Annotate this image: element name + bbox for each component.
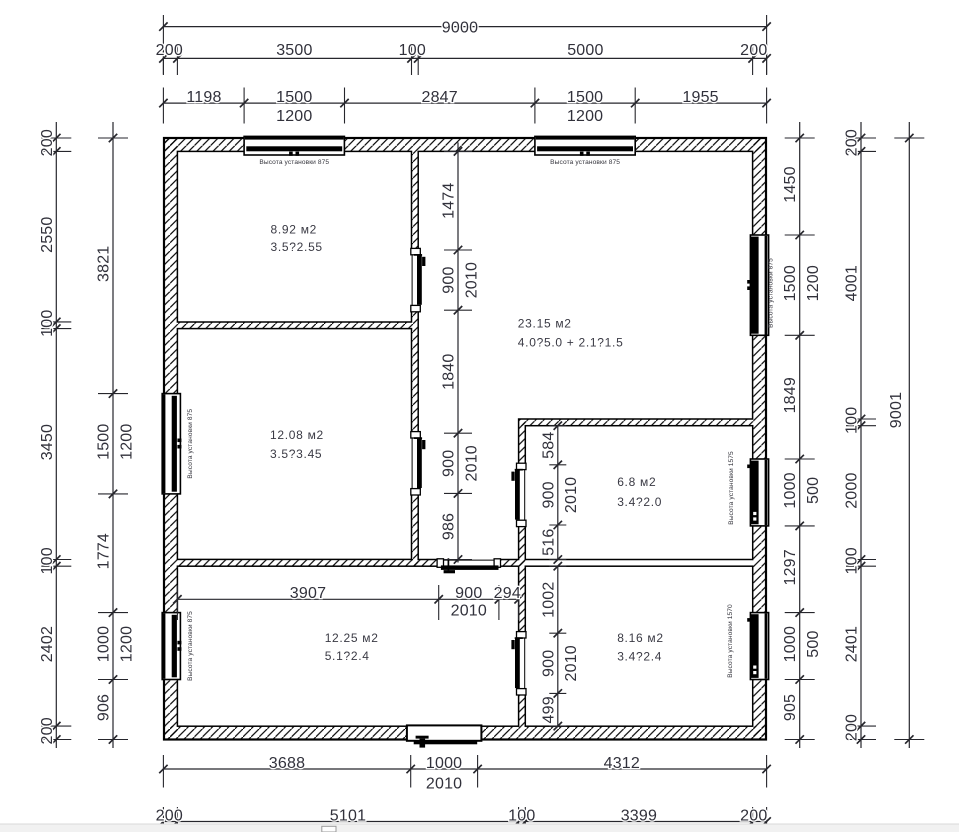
svg-text:100: 100: [399, 42, 426, 59]
svg-text:3399: 3399: [621, 807, 657, 824]
svg-text:500: 500: [805, 630, 822, 657]
svg-text:3821: 3821: [96, 246, 113, 282]
svg-text:1500: 1500: [96, 423, 113, 459]
svg-text:906: 906: [96, 694, 113, 721]
svg-text:200: 200: [39, 717, 56, 744]
svg-text:Высота установки 875: Высота установки 875: [187, 409, 194, 479]
svg-text:100: 100: [39, 547, 56, 574]
svg-text:Высота установки 875: Высота установки 875: [259, 159, 329, 166]
svg-text:100: 100: [844, 547, 861, 574]
svg-text:100: 100: [39, 310, 56, 337]
svg-text:905: 905: [782, 694, 799, 721]
svg-text:500: 500: [805, 477, 822, 504]
svg-text:12.08 м2: 12.08 м2: [270, 428, 324, 442]
svg-text:2010: 2010: [451, 603, 487, 620]
svg-text:900: 900: [441, 266, 458, 293]
svg-text:3.5?2.55: 3.5?2.55: [271, 240, 323, 254]
svg-text:900: 900: [455, 585, 482, 602]
svg-text:200: 200: [39, 129, 56, 156]
svg-text:3688: 3688: [269, 755, 305, 772]
svg-text:1840: 1840: [441, 353, 458, 389]
svg-text:2000: 2000: [844, 472, 861, 508]
svg-text:200: 200: [156, 42, 183, 59]
svg-text:200: 200: [740, 807, 767, 824]
svg-text:1200: 1200: [118, 423, 135, 459]
svg-text:1200: 1200: [567, 108, 603, 125]
svg-text:986: 986: [441, 513, 458, 540]
svg-text:1000: 1000: [782, 626, 799, 662]
svg-text:584: 584: [540, 432, 557, 459]
svg-text:4001: 4001: [844, 265, 861, 301]
svg-text:8.92 м2: 8.92 м2: [271, 223, 318, 237]
svg-text:1000: 1000: [782, 472, 799, 508]
svg-text:4.0?5.0 + 2.1?1.5: 4.0?5.0 + 2.1?1.5: [518, 335, 624, 349]
svg-text:2847: 2847: [421, 89, 457, 106]
svg-text:5101: 5101: [330, 807, 366, 824]
svg-text:2402: 2402: [39, 626, 56, 662]
svg-text:1500: 1500: [276, 89, 312, 106]
svg-text:1474: 1474: [441, 182, 458, 218]
svg-text:200: 200: [844, 714, 861, 741]
svg-text:6.8 м2: 6.8 м2: [617, 475, 656, 489]
svg-text:200: 200: [156, 807, 183, 824]
svg-text:3.4?2.0: 3.4?2.0: [617, 495, 662, 509]
svg-text:2010: 2010: [563, 477, 580, 513]
svg-text:5.1?2.4: 5.1?2.4: [325, 649, 370, 663]
svg-text:2401: 2401: [844, 626, 861, 662]
svg-text:499: 499: [540, 696, 557, 723]
svg-text:Высота установки 1575: Высота установки 1575: [728, 451, 735, 525]
svg-text:Высота установки 875: Высота установки 875: [550, 159, 620, 166]
svg-text:100: 100: [508, 807, 535, 824]
svg-text:3450: 3450: [39, 424, 56, 460]
svg-text:2010: 2010: [426, 776, 462, 793]
svg-text:200: 200: [740, 42, 767, 59]
svg-text:516: 516: [540, 529, 557, 556]
svg-text:2550: 2550: [39, 216, 56, 252]
svg-text:1198: 1198: [186, 89, 221, 106]
svg-text:900: 900: [540, 650, 557, 677]
svg-text:1849: 1849: [782, 377, 799, 413]
svg-text:Высота установки 1570: Высота установки 1570: [727, 604, 734, 678]
svg-text:2010: 2010: [463, 445, 480, 481]
svg-text:1200: 1200: [118, 626, 135, 662]
svg-text:100: 100: [844, 407, 861, 434]
svg-text:900: 900: [441, 450, 458, 477]
svg-text:3.5?3.45: 3.5?3.45: [270, 447, 322, 461]
svg-text:12.25 м2: 12.25 м2: [325, 631, 379, 645]
svg-text:1450: 1450: [782, 166, 799, 202]
svg-text:2010: 2010: [563, 645, 580, 681]
svg-text:1200: 1200: [276, 108, 312, 125]
svg-text:1955: 1955: [682, 89, 718, 106]
svg-text:9001: 9001: [888, 392, 905, 428]
svg-text:23.15 м2: 23.15 м2: [518, 317, 572, 331]
svg-text:1200: 1200: [805, 265, 822, 301]
svg-text:9000: 9000: [442, 19, 478, 36]
svg-text:1500: 1500: [782, 265, 799, 301]
svg-text:5000: 5000: [567, 42, 603, 59]
svg-text:1774: 1774: [96, 533, 113, 569]
svg-text:3500: 3500: [276, 42, 312, 59]
svg-text:900: 900: [540, 481, 557, 508]
svg-text:1297: 1297: [782, 549, 799, 585]
svg-text:1000: 1000: [96, 626, 113, 662]
svg-text:2010: 2010: [463, 262, 480, 298]
svg-text:1002: 1002: [540, 581, 557, 617]
svg-text:Высота установки 875: Высота установки 875: [187, 611, 194, 681]
svg-text:1500: 1500: [567, 89, 603, 106]
svg-text:4312: 4312: [604, 755, 640, 772]
svg-text:3.4?2.4: 3.4?2.4: [617, 649, 662, 663]
svg-text:200: 200: [844, 129, 861, 156]
svg-text:3907: 3907: [290, 585, 326, 602]
svg-text:Высота установки 875: Высота установки 875: [767, 258, 774, 328]
svg-text:294: 294: [494, 585, 521, 602]
svg-text:8.16 м2: 8.16 м2: [617, 631, 664, 645]
svg-text:1000: 1000: [426, 755, 462, 772]
